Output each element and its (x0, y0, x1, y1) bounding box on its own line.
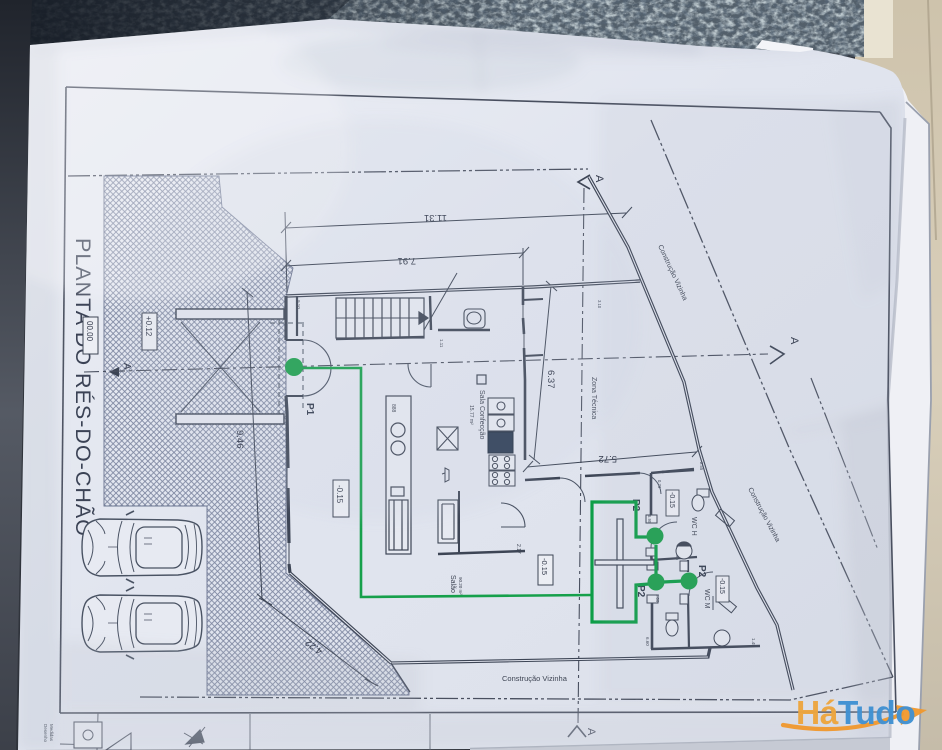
svg-text:-0.15: -0.15 (540, 558, 549, 575)
svg-text:90.20 m²: 90.20 m² (458, 577, 463, 595)
svg-text:Construção Vizinha: Construção Vizinha (502, 674, 568, 683)
svg-text:2.17: 2.17 (515, 544, 521, 554)
svg-text:00.00: 00.00 (85, 321, 94, 342)
svg-text:Salão: Salão (449, 575, 456, 593)
svg-text:HáTudo: HáTudo (796, 695, 915, 732)
